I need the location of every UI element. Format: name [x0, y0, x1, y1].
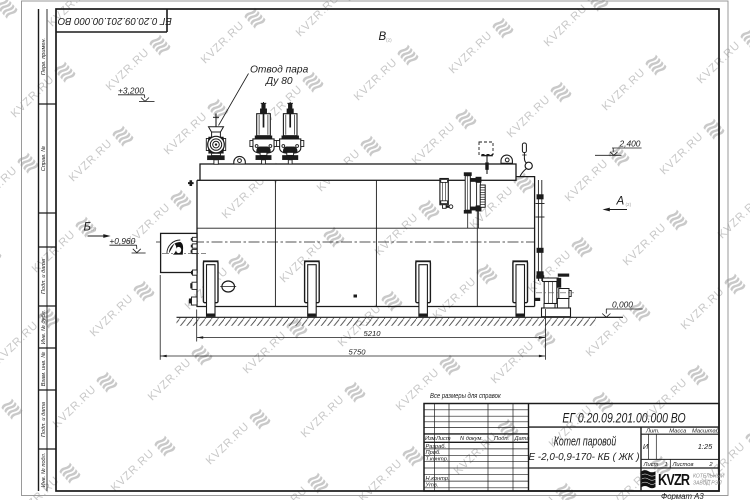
svg-text:А: А: [616, 196, 625, 208]
svg-text:Инв. № дубл.: Инв. № дубл.: [41, 310, 47, 344]
svg-text:(2): (2): [386, 38, 392, 43]
svg-text:Все размеры для справок: Все размеры для справок: [430, 392, 501, 401]
svg-text:ЗАВОД РЭП: ЗАВОД РЭП: [693, 481, 722, 487]
svg-text:ЕГ 0.20.09.201.00.000 ВО: ЕГ 0.20.09.201.00.000 ВО: [562, 410, 685, 426]
svg-text:Т.контр.: Т.контр.: [426, 457, 449, 463]
svg-text:Подп. и дата: Подп. и дата: [41, 402, 47, 437]
svg-text:Проб.: Проб.: [426, 450, 441, 456]
svg-text:(2): (2): [626, 202, 632, 207]
svg-text:+3,200: +3,200: [118, 85, 144, 95]
svg-text:Масштаб: Масштаб: [692, 429, 720, 435]
svg-text:Разраб.: Разраб.: [426, 444, 447, 450]
svg-text:(2): (2): [91, 227, 97, 232]
svg-text:1:25: 1:25: [698, 442, 713, 451]
svg-text:Утв.: Утв.: [425, 483, 439, 489]
svg-text:0,000: 0,000: [612, 299, 633, 309]
svg-text:Перв. примен.: Перв. примен.: [41, 38, 47, 75]
svg-text:И: И: [643, 442, 649, 451]
svg-text:Лит.: Лит.: [645, 429, 660, 435]
svg-text:Инв. № подл.: Инв. № подл.: [41, 453, 47, 488]
svg-text:Е -2,0-0,9-170- КБ ( ЖК ): Е -2,0-0,9-170- КБ ( ЖК ): [528, 452, 639, 463]
svg-text:Подп. и дата: Подп. и дата: [41, 259, 47, 294]
svg-text:1: 1: [664, 462, 667, 468]
svg-text:Листов: Листов: [671, 462, 693, 468]
svg-text:Отвод пара: Отвод пара: [250, 65, 309, 76]
svg-text:Справ. №: Справ. №: [41, 146, 47, 171]
svg-text:5750: 5750: [349, 347, 367, 356]
svg-text:Котел паровой: Котел паровой: [554, 435, 616, 449]
svg-text:Формат А3: Формат А3: [661, 492, 704, 500]
svg-text:КОТЕЛЬНЫЙ: КОТЕЛЬНЫЙ: [693, 472, 725, 480]
svg-text:2,400: 2,400: [619, 139, 641, 149]
svg-text:+0,960: +0,960: [109, 236, 135, 246]
svg-text:Масса: Масса: [669, 429, 687, 435]
svg-text:Н.контр.: Н.контр.: [426, 476, 450, 482]
svg-text:Лист: Лист: [643, 462, 659, 468]
svg-text:KVZR: KVZR: [658, 472, 691, 490]
svg-text:Подп.: Подп.: [494, 436, 509, 442]
svg-text:Дата: Дата: [514, 436, 530, 442]
svg-text:Лист: Лист: [435, 436, 451, 442]
svg-text:5210: 5210: [364, 329, 382, 338]
svg-text:Ду 80: Ду 80: [265, 76, 293, 87]
svg-text:ЕГ 0.20.09.201.00.000 ВО: ЕГ 0.20.09.201.00.000 ВО: [58, 15, 172, 26]
svg-text:Взам. инв. №: Взам. инв. №: [41, 352, 47, 387]
svg-text:N докум.: N докум.: [460, 436, 483, 442]
